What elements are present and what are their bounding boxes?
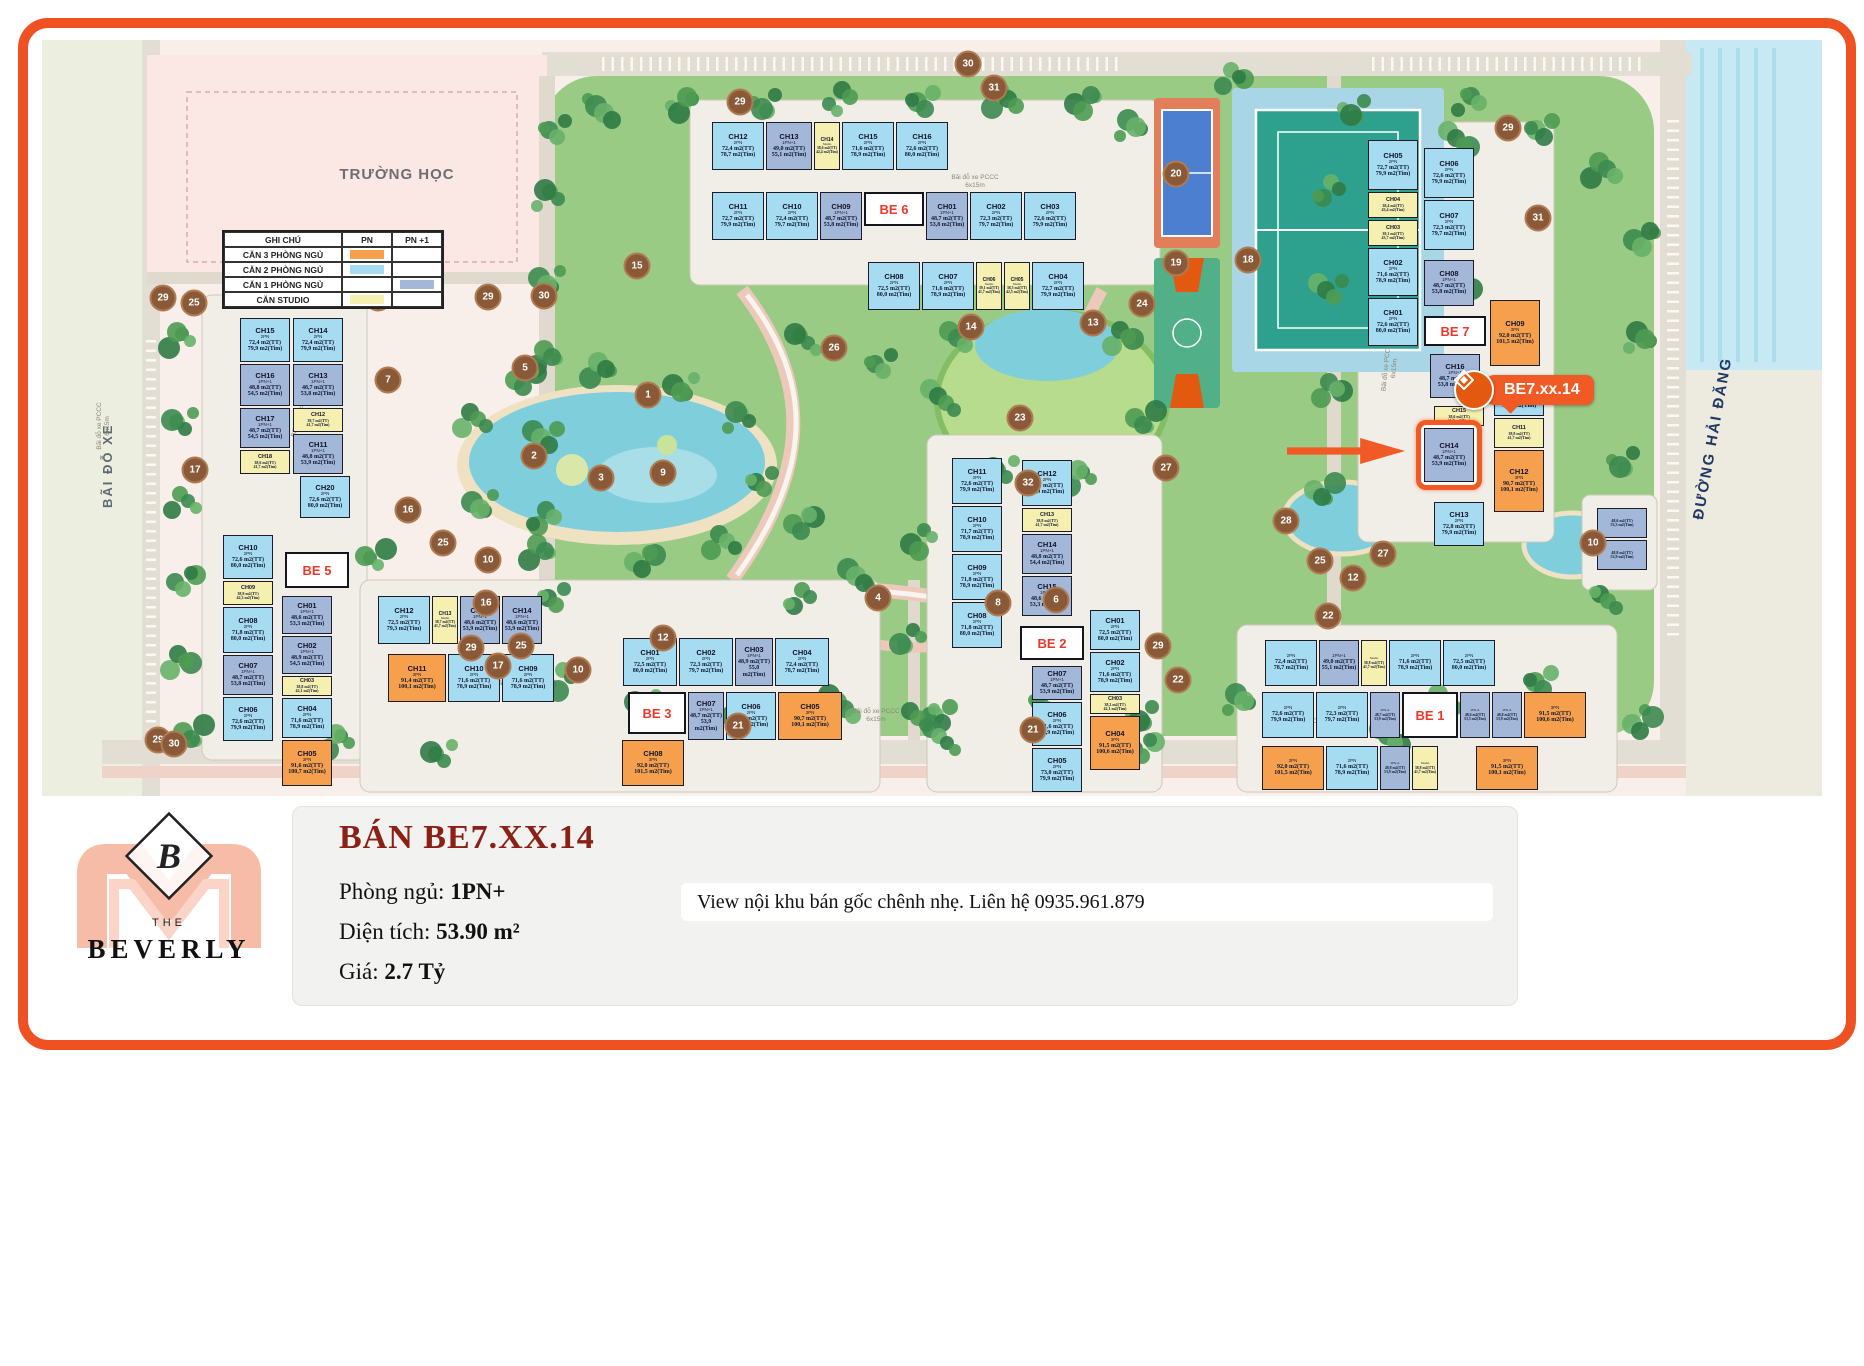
unit-cell-ch09[interactable]: CH091PN+148,7 m2(TT)53,8 m2(Tim) <box>820 192 862 240</box>
unit-cell-ch14[interactable]: CH14Studio38,6 m2(TT)42,4 m2(Tim) <box>814 122 840 170</box>
unit-cell[interactable]: 2PN72,5 m2(TT)80,0 m2(Tim) <box>1443 640 1495 686</box>
legend-header: PN <box>342 232 392 247</box>
building-strip-be5: BE 5 <box>285 552 349 588</box>
amenity-marker-16: 16 <box>473 590 500 617</box>
amenity-marker-7: 7 <box>375 367 402 394</box>
spec-value: 53.90 m² <box>436 919 520 944</box>
unit-callout[interactable]: BE7.xx.14 <box>1454 370 1594 410</box>
unit-cell-ch14[interactable]: CH142PN72,4 m2(TT)79,9 m2(Tim) <box>293 318 343 362</box>
legend-row-label: CĂN 1 PHÒNG NGỦ <box>224 277 342 292</box>
unit-cell-ch18[interactable]: CH18Studio38,6 m2(TT)41,7 m2(Tim) <box>240 450 290 474</box>
building-strip-be7: CH052PN72,7 m2(TT)79,9 m2(Tim)CH04Studio… <box>1368 140 1418 346</box>
unit-cell-ch05[interactable]: CH053PN91,6 m2(TT)100,7 m2(Tim) <box>282 740 332 786</box>
unit-cell-ch07[interactable]: CH071PN+148,7 m2(TT)53,9 m2(Tim) <box>688 692 724 740</box>
brand-logo: B THE BEVERLY <box>62 798 277 1013</box>
amenity-marker-30: 30 <box>161 731 188 758</box>
amenity-marker-8: 8 <box>985 590 1012 617</box>
amenity-marker-4: 4 <box>865 585 892 612</box>
unit-cell-ch13[interactable]: CH13Studio38,7 m2(TT)41,7 m2(Tim) <box>432 596 458 644</box>
building-strip-be7: CH141PN+148,7 m2(TT)53,9 m2(Tim) <box>1416 420 1482 490</box>
legend-swatch-cell <box>342 247 392 262</box>
amenity-marker-25: 25 <box>1307 548 1334 575</box>
unit-cell[interactable]: 3PN91,5 m2(TT)100,1 m2(Tim) <box>1476 746 1538 790</box>
unit-cell-ch01[interactable]: CH012PN72,6 m2(TT)80,0 m2(Tim) <box>1368 298 1418 346</box>
unit-cell-ch08[interactable]: CH082PN71,8 m2(TT)80,0 m2(Tim) <box>223 607 273 653</box>
building-label-be7: BE 7 <box>1424 316 1486 346</box>
unit-cell-ch07[interactable]: CH071PN+148,7 m2(TT)53,9 m2(Tim) <box>1032 666 1082 700</box>
unit-cell-ch09[interactable]: CH09Studio38,9 m2(TT)42,3 m2(Tim) <box>223 581 273 605</box>
unit-cell-ch11[interactable]: CH112PN72,7 m2(TT)79,9 m2(Tim) <box>712 192 764 240</box>
legend-header: PN +1 <box>392 232 442 247</box>
building-strip-be7: CH093PN92,0 m2(TT)101,5 m2(Tim) <box>1490 300 1540 366</box>
spec-price: Giá: 2.7 Tỷ <box>339 959 445 985</box>
unit-cell-ch10[interactable]: CH102PN71,7 m2(TT)78,9 m2(Tim) <box>952 506 1002 552</box>
amenity-marker-17: 17 <box>182 457 209 484</box>
svg-text:THE: THE <box>152 917 186 929</box>
amenity-marker-6: 6 <box>1043 587 1070 614</box>
amenity-marker-19: 19 <box>1163 250 1190 277</box>
building-label-be5: BE 5 <box>285 552 349 588</box>
building-strip-be2: BE 2 <box>1020 626 1084 660</box>
amenity-marker-27: 27 <box>1153 455 1180 482</box>
amenity-marker-29: 29 <box>458 635 485 662</box>
spec-label: Phòng ngủ: <box>339 879 444 904</box>
unit-cell[interactable]: Studio38,8 m2(TT)41,7 m2(Tim) <box>1361 640 1387 686</box>
building-strip-be6: CH112PN72,7 m2(TT)79,9 m2(Tim)CH102PN72,… <box>712 192 1076 240</box>
listing-card: BÁN BE7.XX.14 Phòng ngủ: 1PN+ Diện tích:… <box>292 806 1518 1006</box>
unit-cell[interactable]: 2PN72,4 m2(TT)78,7 m2(Tim) <box>1265 640 1317 686</box>
amenity-marker-12: 12 <box>1340 565 1367 592</box>
legend-swatch <box>400 280 434 289</box>
building-strip-be5: CH142PN72,4 m2(TT)79,9 m2(Tim)CH131PN+14… <box>293 318 343 474</box>
legend-swatch-cell <box>342 277 392 292</box>
building-strip-be5: CH102PN72,6 m2(TT)80,0 m2(Tim)CH09Studio… <box>223 535 273 741</box>
amenity-marker-29: 29 <box>1495 115 1522 142</box>
amenity-marker-21: 21 <box>725 713 752 740</box>
unit-cell[interactable]: 2PN71,6 m2(TT)78,9 m2(Tim) <box>1326 746 1378 790</box>
unit-cell-ch10[interactable]: CH102PN72,4 m2(TT)79,7 m2(Tim) <box>766 192 818 240</box>
unit-cell-ch05[interactable]: CH053PN90,7 m2(TT)100,1 m2(Tim) <box>778 692 842 740</box>
unit-cell-ch03[interactable]: CH031PN+148,9 m2(TT)55,0 m2(Tim) <box>735 638 773 686</box>
amenity-marker-28: 28 <box>1273 508 1300 535</box>
unit-cell[interactable]: 1PN+148,6 m2(TT)53,3 m2(Tim) <box>1460 692 1490 738</box>
amenity-marker-31: 31 <box>981 75 1008 102</box>
listing-title: BÁN BE7.XX.14 <box>339 819 595 857</box>
unit-cell-ch10[interactable]: CH102PN72,6 m2(TT)80,0 m2(Tim) <box>223 535 273 579</box>
legend-row-label: CĂN STUDIO <box>224 292 342 307</box>
amenity-marker-1: 1 <box>635 382 662 409</box>
amenity-marker-18: 18 <box>1235 247 1262 274</box>
amenity-marker-30: 30 <box>955 51 982 78</box>
unit-cell-ch11[interactable]: CH11Studio38,8 m2(TT)41,7 m2(Tim) <box>1494 418 1544 448</box>
building-strip-be1: 3PN92,0 m2(TT)101,5 m2(Tim)2PN71,6 m2(TT… <box>1262 746 1538 790</box>
unit-cell-ch01[interactable]: CH011PN+148,6 m2(TT)53,3 m2(Tim) <box>282 596 332 634</box>
school-area-label: TRƯỜNG HỌC <box>292 166 502 183</box>
building-label-be2: BE 2 <box>1020 626 1084 660</box>
amenity-marker-25: 25 <box>181 290 208 317</box>
amenity-marker-29: 29 <box>150 285 177 312</box>
unit-cell-ch06[interactable]: CH06Studio39,1 m2(TT)41,7 m2(Tim) <box>976 262 1002 310</box>
unit-cell-ch12[interactable]: CH123PN90,7 m2(TT)100,1 m2(Tim) <box>1494 450 1544 512</box>
building-strip-be6: CH122PN72,4 m2(TT)78,7 m2(Tim)CH131PN+14… <box>712 122 948 170</box>
amenity-marker-13: 13 <box>1080 310 1107 337</box>
legend-row-label: CĂN 3 PHÒNG NGỦ <box>224 247 342 262</box>
unit-cell[interactable]: 2PN71,6 m2(TT)78,9 m2(Tim) <box>1389 640 1441 686</box>
unit-cell[interactable]: 2PN72,3 m2(TT)79,7 m2(Tim) <box>1316 692 1368 738</box>
unit-cell[interactable]: 1PN+148,6 m2(TT)53,3 m2(Tim) <box>1597 508 1647 538</box>
legend-swatch-cell <box>392 277 442 292</box>
building-label-be6: BE 6 <box>864 192 924 226</box>
unit-cell[interactable]: 3PN91,5 m2(TT)100,6 m2(Tim) <box>1524 692 1586 738</box>
unit-cell-ch14[interactable]: CH141PN+148,8 m2(TT)54,4 m2(Tim) <box>1022 534 1072 574</box>
building-strip-be5: CH011PN+148,6 m2(TT)53,3 m2(Tim)CH021PN+… <box>282 596 332 786</box>
legend-swatch <box>350 250 384 259</box>
amenity-marker-10: 10 <box>565 657 592 684</box>
unit-cell-ch17[interactable]: CH171PN+148,7 m2(TT)54,5 m2(Tim) <box>240 408 290 448</box>
amenity-marker-12: 12 <box>650 625 677 652</box>
unit-cell[interactable]: 2PN72,6 m2(TT)79,9 m2(Tim) <box>1262 692 1314 738</box>
amenity-marker-3: 3 <box>588 465 615 492</box>
amenity-marker-25: 25 <box>508 633 535 660</box>
amenity-marker-29: 29 <box>475 284 502 311</box>
amenity-marker-16: 16 <box>395 497 422 524</box>
unit-cell[interactable]: 1PN+148,8 m2(TT)53,9 m2(Tim) <box>1380 746 1410 790</box>
unit-cell-ch11[interactable]: CH113PN91,4 m2(TT)100,1 m2(Tim) <box>388 654 446 702</box>
unit-cell-ch09[interactable]: CH093PN92,0 m2(TT)101,5 m2(Tim) <box>1490 300 1540 366</box>
legend-swatch-cell <box>342 262 392 277</box>
amenity-marker-25: 25 <box>430 530 457 557</box>
legend-swatch-cell <box>392 247 442 262</box>
unit-cell-ch20[interactable]: CH202PN72,6 m2(TT)80,0 m2(Tim) <box>300 476 350 518</box>
building-strip-be5: CH152PN72,4 m2(TT)79,9 m2(Tim)CH161PN+14… <box>240 318 290 474</box>
amenity-marker-5: 5 <box>512 355 539 382</box>
unit-cell-ch02[interactable]: CH022PN72,3 m2(TT)79,7 m2(Tim) <box>970 192 1022 240</box>
unit-cell-ch16[interactable]: CH162PN72,6 m2(TT)80,0 m2(Tim) <box>896 122 948 170</box>
unit-cell-ch03[interactable]: CH0338,8 m2(TT)42,1 m2(Tim) <box>282 676 332 696</box>
unit-cell-ch03[interactable]: CH0338,2 m2(TT)42,1 m2(Tim) <box>1090 694 1140 714</box>
unit-cell[interactable]: Studio38,8 m2(TT)41,7 m2(Tim) <box>1412 746 1438 790</box>
unit-cell-ch01[interactable]: CH011PN+148,7 m2(TT)53,8 m2(Tim) <box>926 192 968 240</box>
unit-cell-ch13[interactable]: CH13Studio38,8 m2(TT)41,7 m2(Tim) <box>1022 508 1072 532</box>
unit-cell-ch06[interactable]: CH062PN72,6 m2(TT)79,9 m2(Tim) <box>223 697 273 741</box>
amenity-marker-15: 15 <box>624 253 651 280</box>
amenity-marker-22: 22 <box>1165 667 1192 694</box>
unit-cell-ch07[interactable]: CH072PN72,3 m2(TT)79,7 m2(Tim) <box>1424 200 1474 250</box>
unit-cell-ch02[interactable]: CH022PN72,3 m2(TT)79,7 m2(Tim) <box>679 638 733 686</box>
building-strip-be1: 2PN72,6 m2(TT)79,9 m2(Tim)2PN72,3 m2(TT)… <box>1262 692 1586 738</box>
spec-value: 1PN+ <box>450 879 505 904</box>
unit-cell[interactable]: 3PN92,0 m2(TT)101,5 m2(Tim) <box>1262 746 1324 790</box>
unit-cell-ch05[interactable]: CH05Studio38,5 m2(TT)42,5 m2(Tim) <box>1004 262 1030 310</box>
legend-header: GHI CHÚ <box>224 232 342 247</box>
amenity-marker-2: 2 <box>521 443 548 470</box>
brand-badge-icon <box>1454 370 1494 410</box>
parking-label: Bãi đỗ xe PCCC 6x15m <box>96 402 112 449</box>
amenity-marker-29: 29 <box>727 89 754 116</box>
spec-bedrooms: Phòng ngủ: 1PN+ <box>339 879 505 905</box>
unit-cell-ch08[interactable]: CH083PN92,0 m2(TT)101,5 m2(Tim) <box>622 740 684 786</box>
parking-label: Bãi đỗ xe PCCC 6x15m <box>852 708 899 724</box>
logo-monogram: B <box>156 836 181 876</box>
unit-cell-ch04[interactable]: CH042PN72,4 m2(TT)78,7 m2(Tim) <box>775 638 829 686</box>
spec-label: Diện tích: <box>339 919 430 944</box>
unit-cell-ch02[interactable]: CH022PN71,6 m2(TT)78,9 m2(Tim) <box>1368 248 1418 296</box>
listing-note: View nội khu bán gốc chênh nhẹ. Liên hệ … <box>681 883 1493 921</box>
building-strip-be2: CH112PN72,6 m2(TT)79,9 m2(Tim)CH102PN71,… <box>952 458 1002 648</box>
unit-cell-ch14[interactable]: CH141PN+148,7 m2(TT)53,9 m2(Tim) <box>1424 428 1474 482</box>
amenity-marker-10: 10 <box>475 547 502 574</box>
amenity-marker-23: 23 <box>1007 405 1034 432</box>
unit-cell-ch03[interactable]: CH03Studio39,1 m2(TT)43,7 m2(Tim) <box>1368 220 1418 246</box>
amenity-marker-10: 10 <box>1580 530 1607 557</box>
unit-cell-ch15[interactable]: CH152PN72,4 m2(TT)79,9 m2(Tim) <box>240 318 290 362</box>
unit-cell-ch05[interactable]: CH052PN73,0 m2(TT)79,9 m2(Tim) <box>1032 748 1082 792</box>
building-label-be1: BE 1 <box>1402 692 1458 738</box>
amenity-marker-26: 26 <box>821 335 848 362</box>
amenity-marker-29: 29 <box>1145 633 1172 660</box>
building-strip-be2: CH012PN72,5 m2(TT)80,0 m2(Tim)CH022PN71,… <box>1090 610 1140 770</box>
unit-cell-ch04[interactable]: CH042PN71,6 m2(TT)78,9 m2(Tim) <box>282 698 332 738</box>
highlighted-unit[interactable]: CH141PN+148,7 m2(TT)53,9 m2(Tim) <box>1416 420 1482 490</box>
unit-cell-ch07[interactable]: CH072PN71,6 m2(TT)78,9 m2(Tim) <box>922 262 974 310</box>
unit-cell-ch13[interactable]: CH131PN+149,0 m2(TT)55,1 m2(Tim) <box>766 122 812 170</box>
unit-cell-ch01[interactable]: CH012PN72,5 m2(TT)80,0 m2(Tim) <box>1090 610 1140 650</box>
unit-cell-ch07[interactable]: CH071PN+148,7 m2(TT)53,8 m2(Tim) <box>223 655 273 695</box>
unit-cell[interactable]: 1PN+149,0 m2(TT)55,1 m2(Tim) <box>1319 640 1359 686</box>
unit-cell-ch04[interactable]: CH04Studio38,4 m2(TT)43,4 m2(Tim) <box>1368 192 1418 218</box>
unit-cell-ch04[interactable]: CH042PN72,7 m2(TT)79,9 m2(Tim) <box>1032 262 1084 310</box>
unit-cell-ch03[interactable]: CH032PN72,6 m2(TT)79,9 m2(Tim) <box>1024 192 1076 240</box>
unit-cell-ch02[interactable]: CH021PN+148,9 m2(TT)54,5 m2(Tim) <box>282 636 332 674</box>
spec-label: Giá: <box>339 959 379 984</box>
building-strip-be3: CH083PN92,0 m2(TT)101,5 m2(Tim) <box>622 740 684 786</box>
building-strip-be6: CH082PN72,5 m2(TT)80,0 m2(Tim)CH072PN71,… <box>868 262 1084 310</box>
unit-cell-ch08[interactable]: CH082PN72,5 m2(TT)80,0 m2(Tim) <box>868 262 920 310</box>
unit-cell[interactable]: 1PN+148,7 m2(TT)53,9 m2(Tim) <box>1370 692 1400 738</box>
amenity-marker-14: 14 <box>958 314 985 341</box>
legend-table: GHI CHÚPNPN +1CĂN 3 PHÒNG NGỦCĂN 2 PHÒNG… <box>222 230 444 309</box>
unit-cell-ch08[interactable]: CH081PN+148,7 m2(TT)53,8 m2(Tim) <box>1424 260 1474 306</box>
page: TRƯỜNG HỌC GHI CHÚPNPN +1CĂN 3 PHÒNG NGỦ… <box>0 0 1864 1366</box>
svg-text:BEVERLY: BEVERLY <box>87 934 250 964</box>
building-label-be3: BE 3 <box>628 692 686 734</box>
building-strip-be7: CH132PN72,8 m2(TT)79,9 m2(Tim) <box>1434 502 1484 546</box>
amenity-marker-32: 32 <box>1015 470 1042 497</box>
unit-cell-ch15[interactable]: CH152PN71,6 m2(TT)78,9 m2(Tim) <box>842 122 894 170</box>
building-strip-be7: CH062PN72,6 m2(TT)79,9 m2(Tim)CH072PN72,… <box>1424 148 1474 306</box>
amenity-marker-9: 9 <box>650 460 677 487</box>
unit-cell[interactable]: 1PN+148,8 m2(TT)53,9 m2(Tim) <box>1492 692 1522 738</box>
unit-cell-ch04[interactable]: CH043PN91,5 m2(TT)100,6 m2(Tim) <box>1090 716 1140 770</box>
legend-swatch <box>350 295 384 304</box>
legend-swatch-cell <box>342 292 392 307</box>
building-strip-be7: BE 7 <box>1424 316 1486 346</box>
amenity-marker-31: 31 <box>1525 205 1552 232</box>
amenity-marker-21: 21 <box>1020 717 1047 744</box>
unit-cell-ch16[interactable]: CH161PN+148,8 m2(TT)54,5 m2(Tim) <box>240 364 290 406</box>
spec-value: 2.7 Tỷ <box>384 959 445 984</box>
unit-cell-ch11[interactable]: CH111PN+148,8 m2(TT)53,9 m2(Tim) <box>293 434 343 474</box>
legend-swatch <box>350 265 384 274</box>
spec-area: Diện tích: 53.90 m² <box>339 919 520 945</box>
unit-cell-ch06[interactable]: CH062PN72,6 m2(TT)79,9 m2(Tim) <box>1424 148 1474 198</box>
unit-cell-ch05[interactable]: CH052PN72,7 m2(TT)79,9 m2(Tim) <box>1368 140 1418 190</box>
amenity-marker-22: 22 <box>1315 603 1342 630</box>
unit-cell-ch13[interactable]: CH131PN+148,7 m2(TT)53,8 m2(Tim) <box>293 364 343 406</box>
parking-label: Bãi đỗ xe PCCC 6x15m <box>951 174 998 190</box>
building-strip-be5: CH202PN72,6 m2(TT)80,0 m2(Tim) <box>300 476 350 518</box>
legend-row-label: CĂN 2 PHÒNG NGỦ <box>224 262 342 277</box>
legend-swatch-cell <box>392 292 442 307</box>
unit-cell-ch02[interactable]: CH022PN71,6 m2(TT)78,9 m2(Tim) <box>1090 652 1140 692</box>
unit-cell-ch12[interactable]: CH122PN72,4 m2(TT)78,7 m2(Tim) <box>712 122 764 170</box>
unit-cell-ch13[interactable]: CH132PN72,8 m2(TT)79,9 m2(Tim) <box>1434 502 1484 546</box>
amenity-marker-17: 17 <box>485 653 512 680</box>
unit-cell-ch12[interactable]: CH12Studio38,7 m2(TT)41,7 m2(Tim) <box>293 408 343 432</box>
amenity-marker-20: 20 <box>1163 161 1190 188</box>
callout-label: BE7.xx.14 <box>1486 375 1594 405</box>
amenity-marker-27: 27 <box>1370 541 1397 568</box>
amenity-marker-30: 30 <box>531 283 558 310</box>
amenity-marker-24: 24 <box>1129 291 1156 318</box>
building-strip-be1: 2PN72,4 m2(TT)78,7 m2(Tim)1PN+149,0 m2(T… <box>1265 640 1495 686</box>
unit-cell-ch12[interactable]: CH122PN72,5 m2(TT)79,3 m2(Tim) <box>378 596 430 644</box>
unit-cell-ch11[interactable]: CH112PN72,6 m2(TT)79,9 m2(Tim) <box>952 458 1002 504</box>
legend-swatch-cell <box>392 262 442 277</box>
site-map: TRƯỜNG HỌC GHI CHÚPNPN +1CĂN 3 PHÒNG NGỦ… <box>42 40 1822 796</box>
